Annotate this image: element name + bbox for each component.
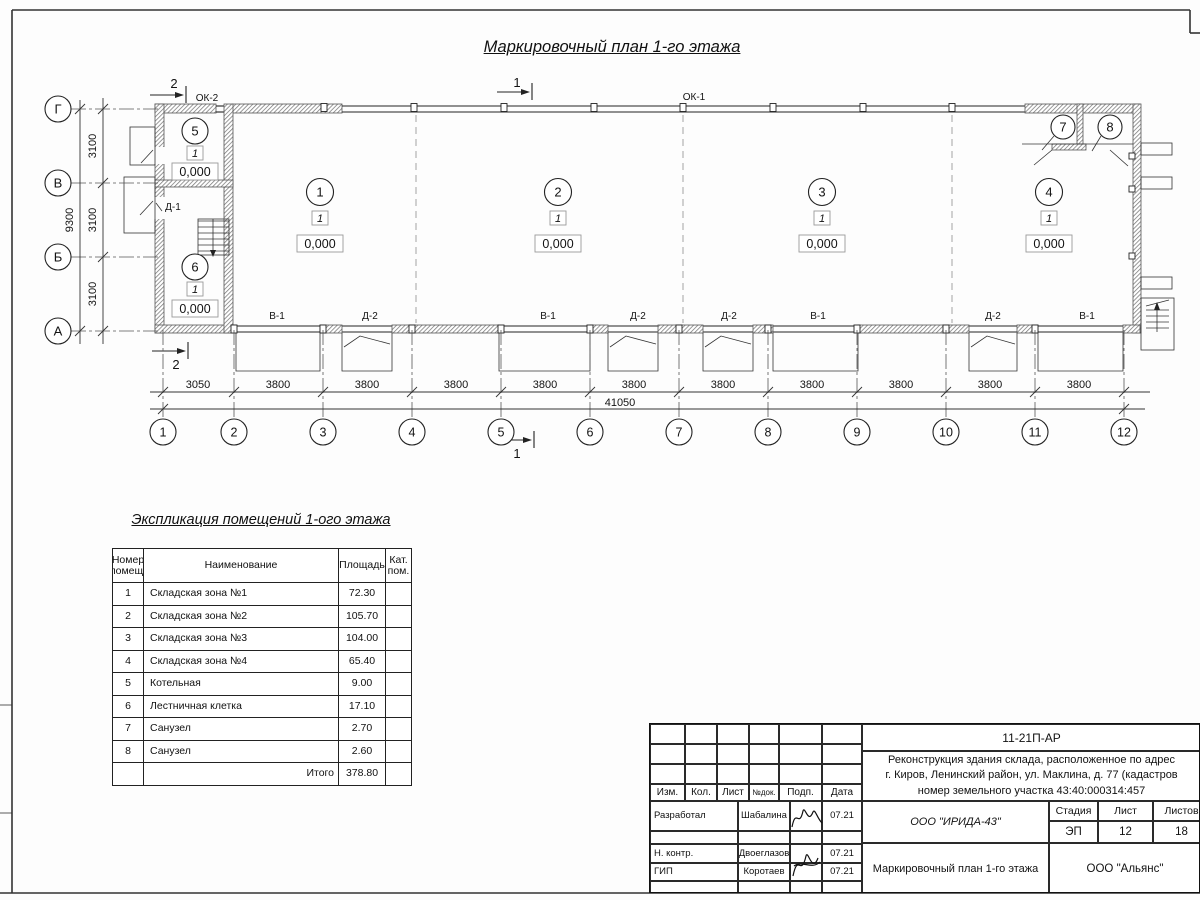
svg-text:9: 9 bbox=[854, 426, 861, 440]
svg-text:4: 4 bbox=[1045, 185, 1052, 200]
table-row: 2 Складская зона №2 105.70 bbox=[113, 606, 411, 629]
svg-text:0,000: 0,000 bbox=[179, 165, 210, 179]
svg-text:3800: 3800 bbox=[800, 379, 824, 391]
col-header-category: Кат. пом. bbox=[386, 549, 411, 582]
svg-text:1: 1 bbox=[192, 148, 198, 160]
element-labels: ОК-2 ОК-1 Д-1 В-1 Д-2 В-1 Д-2 Д-2 В-1 Д-… bbox=[156, 92, 1095, 322]
stamp-col-list: Лист bbox=[717, 784, 749, 801]
signature-icon bbox=[788, 846, 824, 882]
svg-text:3800: 3800 bbox=[444, 379, 468, 391]
window-label-ok2: ОК-2 bbox=[196, 93, 219, 104]
room-marker-2: 2 1 0,000 bbox=[535, 179, 581, 253]
table-row: 3 Складская зона №3 104.00 bbox=[113, 628, 411, 651]
svg-text:41050: 41050 bbox=[605, 397, 636, 409]
role-date: 07.21 bbox=[822, 801, 862, 831]
svg-text:1: 1 bbox=[316, 185, 323, 200]
table-row: 6 Лестничная клетка 17.10 bbox=[113, 696, 411, 719]
table-row: 7 Санузел 2.70 bbox=[113, 718, 411, 741]
room-marker-8: 8 bbox=[1092, 115, 1122, 151]
total-area: 378.80 bbox=[339, 763, 386, 785]
role-date: 07.21 bbox=[822, 844, 862, 863]
svg-text:2: 2 bbox=[231, 426, 238, 440]
title-block: Изм. Кол. Лист №док. Подп. Дата Разработ… bbox=[649, 723, 1200, 893]
svg-text:3800: 3800 bbox=[355, 379, 379, 391]
svg-text:1: 1 bbox=[513, 75, 520, 90]
vertical-dimensions: 3100 3100 3100 9300 bbox=[64, 98, 108, 344]
svg-text:1: 1 bbox=[160, 426, 167, 440]
sheets-value: 18 bbox=[1153, 821, 1200, 843]
svg-text:Б: Б bbox=[54, 250, 63, 265]
svg-text:8: 8 bbox=[765, 426, 772, 440]
svg-text:0,000: 0,000 bbox=[542, 237, 573, 251]
svg-text:Д-2: Д-2 bbox=[985, 311, 1001, 322]
svg-text:11: 11 bbox=[1029, 426, 1042, 440]
project-description: Реконструкция здания склада, расположенн… bbox=[862, 751, 1200, 801]
table-row: 5 Котельная 9.00 bbox=[113, 673, 411, 696]
stamp-col-izm: Изм. bbox=[650, 784, 685, 801]
sheets-label: Листов bbox=[1153, 801, 1200, 821]
svg-text:0,000: 0,000 bbox=[1033, 237, 1064, 251]
svg-text:В-1: В-1 bbox=[269, 311, 285, 322]
sheet-value: 12 bbox=[1098, 821, 1153, 843]
svg-text:6: 6 bbox=[587, 426, 594, 440]
schedule-title: Экспликация помещений 1-ого этажа bbox=[112, 512, 410, 528]
role-name: Двоеглазов bbox=[738, 844, 790, 863]
drawing-sheet: { "title": "Маркировочный план 1-го этаж… bbox=[0, 0, 1200, 900]
svg-text:1: 1 bbox=[317, 213, 323, 225]
stamp-col-kol: Кол. bbox=[685, 784, 717, 801]
svg-text:9300: 9300 bbox=[64, 208, 76, 232]
row-axes: Г В Б А bbox=[45, 96, 160, 344]
svg-text:Д-2: Д-2 bbox=[630, 311, 646, 322]
stamp-col-ndok: №док. bbox=[749, 784, 779, 801]
svg-text:1: 1 bbox=[819, 213, 825, 225]
svg-text:В-1: В-1 bbox=[1079, 311, 1095, 322]
room-marker-3: 3 1 0,000 bbox=[799, 179, 845, 253]
total-label: Итого bbox=[144, 763, 339, 785]
svg-text:3800: 3800 bbox=[266, 379, 290, 391]
svg-text:В: В bbox=[54, 176, 63, 191]
col-header-name: Наименование bbox=[144, 549, 339, 582]
svg-text:4: 4 bbox=[409, 426, 416, 440]
svg-text:Д-2: Д-2 bbox=[362, 311, 378, 322]
zone-divider-lines bbox=[416, 115, 952, 323]
svg-text:1: 1 bbox=[1046, 213, 1052, 225]
svg-text:2: 2 bbox=[170, 76, 177, 91]
table-row: 1 Складская зона №1 72.30 bbox=[113, 583, 411, 606]
building-walls bbox=[155, 104, 1141, 333]
drawing-title: Маркировочный план 1-го этажа bbox=[862, 843, 1049, 893]
role-label: Разработал bbox=[650, 801, 738, 831]
svg-text:5: 5 bbox=[191, 124, 198, 139]
signature-icon bbox=[788, 803, 824, 831]
svg-text:3800: 3800 bbox=[1067, 379, 1091, 391]
svg-text:1: 1 bbox=[555, 213, 561, 225]
svg-text:2: 2 bbox=[554, 185, 561, 200]
door-label-d1: Д-1 bbox=[165, 202, 181, 213]
svg-text:3800: 3800 bbox=[978, 379, 1002, 391]
svg-text:8: 8 bbox=[1106, 120, 1113, 135]
role-name: Коротаев bbox=[738, 863, 790, 881]
svg-text:3100: 3100 bbox=[87, 282, 99, 306]
role-label: ГИП bbox=[650, 863, 738, 881]
svg-text:3800: 3800 bbox=[622, 379, 646, 391]
svg-text:0,000: 0,000 bbox=[304, 237, 335, 251]
table-row: 4 Складская зона №4 65.40 bbox=[113, 651, 411, 674]
svg-text:5: 5 bbox=[498, 426, 505, 440]
svg-text:Д-2: Д-2 bbox=[721, 311, 737, 322]
svg-text:В-1: В-1 bbox=[810, 311, 826, 322]
customer-org: ООО "Альянс" bbox=[1049, 843, 1200, 893]
page-title: Маркировочный план 1-го этажа bbox=[430, 38, 794, 57]
stamp-col-podp: Подп. bbox=[779, 784, 822, 801]
room-schedule-table: Номер помещ. Наименование Площадь Кат. п… bbox=[112, 548, 412, 786]
svg-text:10: 10 bbox=[939, 426, 953, 440]
room-marker-5: 5 1 0,000 bbox=[172, 118, 218, 180]
horizontal-dimensions: 3050 3800 3800 3800 3800 3800 3800 3800 … bbox=[150, 379, 1150, 414]
svg-text:3: 3 bbox=[320, 426, 327, 440]
room-marker-4: 4 1 0,000 bbox=[1026, 179, 1072, 253]
svg-text:3100: 3100 bbox=[87, 208, 99, 232]
svg-text:2: 2 bbox=[172, 357, 179, 372]
sheet-label: Лист bbox=[1098, 801, 1153, 821]
svg-text:3800: 3800 bbox=[711, 379, 735, 391]
svg-text:7: 7 bbox=[1059, 120, 1066, 135]
porches-and-canopies bbox=[124, 127, 1172, 289]
svg-text:3050: 3050 bbox=[186, 379, 210, 391]
document-number: 11-21П-АР bbox=[862, 724, 1200, 751]
stamp-col-data: Дата bbox=[822, 784, 862, 801]
svg-text:1: 1 bbox=[513, 446, 520, 461]
room-marker-6: 6 1 0,000 bbox=[172, 254, 218, 317]
role-date: 07.21 bbox=[822, 863, 862, 881]
table-row: 8 Санузел 2.60 bbox=[113, 741, 411, 764]
col-header-area: Площадь bbox=[339, 549, 386, 582]
stairs-exterior bbox=[1141, 298, 1174, 350]
stage-value: ЭП bbox=[1049, 821, 1098, 843]
svg-text:В-1: В-1 bbox=[540, 311, 556, 322]
svg-text:3100: 3100 bbox=[87, 134, 99, 158]
svg-text:6: 6 bbox=[191, 260, 198, 275]
svg-text:12: 12 bbox=[1117, 426, 1131, 440]
role-label: Н. контр. bbox=[650, 844, 738, 863]
svg-text:7: 7 bbox=[676, 426, 683, 440]
svg-text:0,000: 0,000 bbox=[806, 237, 837, 251]
schedule-header-row: Номер помещ. Наименование Площадь Кат. п… bbox=[113, 549, 411, 583]
room-marker-1: 1 1 0,000 bbox=[297, 179, 343, 253]
design-org: ООО "ИРИДА-43" bbox=[862, 801, 1049, 843]
svg-text:Г: Г bbox=[54, 102, 61, 117]
svg-text:А: А bbox=[54, 324, 63, 339]
col-header-number: Номер помещ. bbox=[113, 549, 144, 582]
svg-text:3800: 3800 bbox=[889, 379, 913, 391]
svg-text:3800: 3800 bbox=[533, 379, 557, 391]
role-name: Шабалина bbox=[738, 801, 790, 831]
table-total-row: Итого 378.80 bbox=[113, 763, 411, 785]
svg-text:3: 3 bbox=[818, 185, 825, 200]
svg-text:0,000: 0,000 bbox=[179, 302, 210, 316]
window-label-ok1: ОК-1 bbox=[683, 92, 706, 103]
svg-text:1: 1 bbox=[192, 284, 198, 296]
stage-label: Стадия bbox=[1049, 801, 1098, 821]
